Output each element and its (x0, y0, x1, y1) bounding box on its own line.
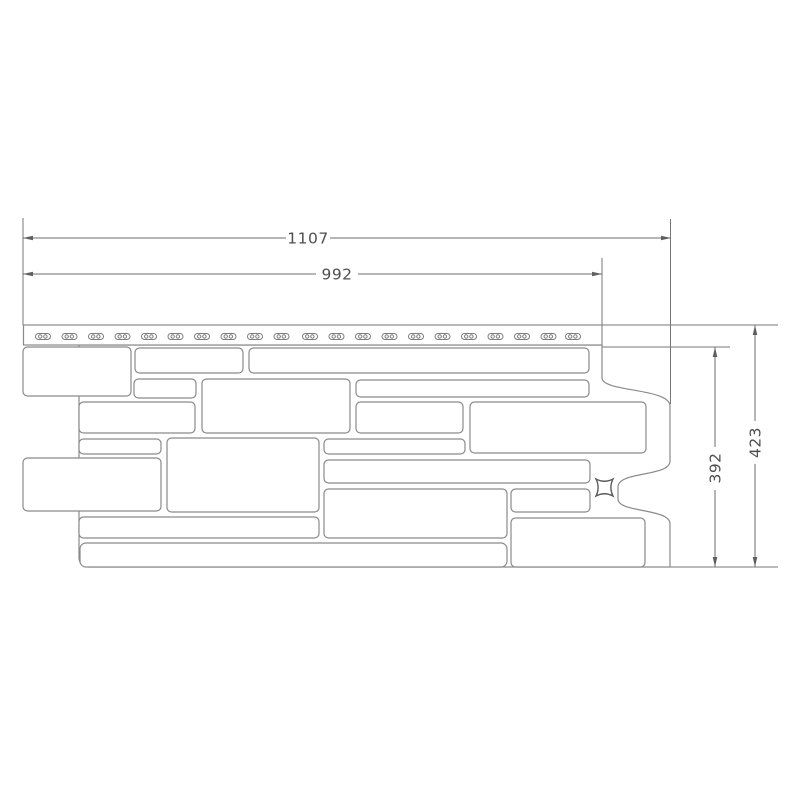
dimension-label-overall-width: 1107 (287, 230, 328, 248)
nail-strip (24, 325, 603, 345)
arrow-left-icon (23, 236, 33, 241)
arrow-left-icon (23, 272, 33, 277)
stone-block (511, 489, 590, 512)
stone-block (23, 458, 161, 511)
dimension-label-useful-height: 392 (707, 452, 725, 483)
stone-block (79, 517, 319, 538)
drawing-canvas: 1107 992 392 423 (0, 0, 800, 800)
stone-block (202, 379, 350, 433)
dimension-useful-width: 992 (23, 266, 602, 284)
stone-block (324, 439, 465, 454)
stone-block (134, 379, 196, 398)
stone-block (324, 489, 507, 538)
arrow-right-icon (661, 236, 671, 241)
stone-block (470, 402, 646, 453)
stone-block (23, 347, 131, 396)
arrow-down-icon (713, 557, 718, 567)
x-marker-icon (596, 479, 613, 496)
dimension-label-useful-width: 992 (321, 266, 352, 284)
stone-block (324, 460, 590, 483)
stone-block (356, 380, 589, 397)
facade-panel-drawing: 1107 992 392 423 (0, 0, 800, 800)
stone-block (167, 438, 319, 512)
dimension-overall-width: 1107 (23, 230, 671, 248)
stone-block (135, 348, 243, 373)
stone-block (249, 348, 589, 373)
stone-block (356, 402, 463, 433)
arrow-up-icon (713, 347, 718, 357)
bottom-lip (80, 543, 507, 567)
dimension-overall-height: 423 (747, 325, 765, 567)
stone-block (79, 439, 161, 454)
dimension-label-overall-height: 423 (747, 427, 765, 458)
arrow-up-icon (753, 325, 758, 335)
stone-block (511, 518, 645, 567)
arrow-down-icon (753, 557, 758, 567)
stone-block (79, 402, 195, 433)
arrow-right-icon (592, 272, 602, 277)
dimension-useful-height: 392 (707, 347, 725, 567)
